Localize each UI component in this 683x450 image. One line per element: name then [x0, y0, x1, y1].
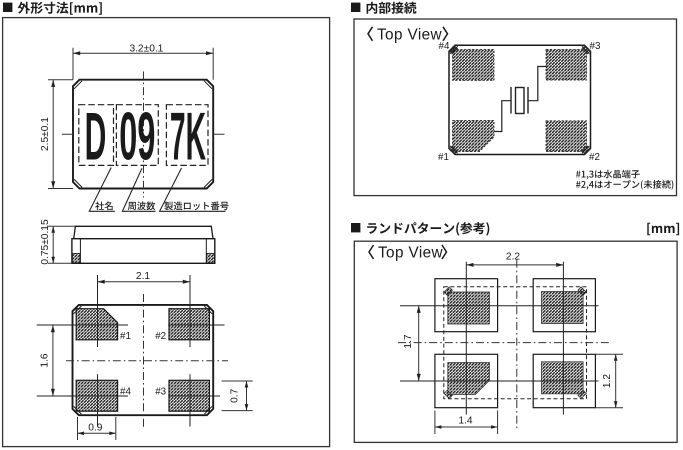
svg-text:D: D [85, 99, 107, 175]
svg-text:Top View: Top View [378, 245, 444, 262]
svg-text:09: 09 [119, 99, 155, 175]
svg-text:#2: #2 [589, 152, 600, 163]
svg-text:Top View: Top View [377, 26, 443, 43]
svg-text:1.4: 1.4 [458, 416, 472, 427]
svg-text:#1: #1 [120, 331, 131, 342]
svg-text:#4: #4 [439, 41, 450, 52]
svg-text:0.75±0.15: 0.75±0.15 [40, 219, 51, 265]
svg-text:1.6: 1.6 [40, 353, 51, 367]
svg-text:2.2: 2.2 [506, 251, 520, 262]
svg-text:#1: #1 [438, 152, 449, 163]
svg-text:3.2±0.1: 3.2±0.1 [129, 44, 163, 55]
svg-text:0.7: 0.7 [230, 388, 241, 402]
svg-text:#3: #3 [155, 387, 166, 398]
svg-text:0.9: 0.9 [88, 423, 102, 434]
svg-text:#4: #4 [120, 387, 131, 398]
svg-text:1.7: 1.7 [403, 334, 414, 348]
svg-text:2.5±0.1: 2.5±0.1 [40, 117, 51, 151]
svg-text:2.1: 2.1 [136, 271, 150, 282]
svg-text:#3: #3 [590, 41, 601, 52]
svg-text:#2: #2 [155, 331, 166, 342]
svg-text:7K: 7K [170, 99, 206, 175]
svg-text:1.2: 1.2 [602, 374, 613, 388]
